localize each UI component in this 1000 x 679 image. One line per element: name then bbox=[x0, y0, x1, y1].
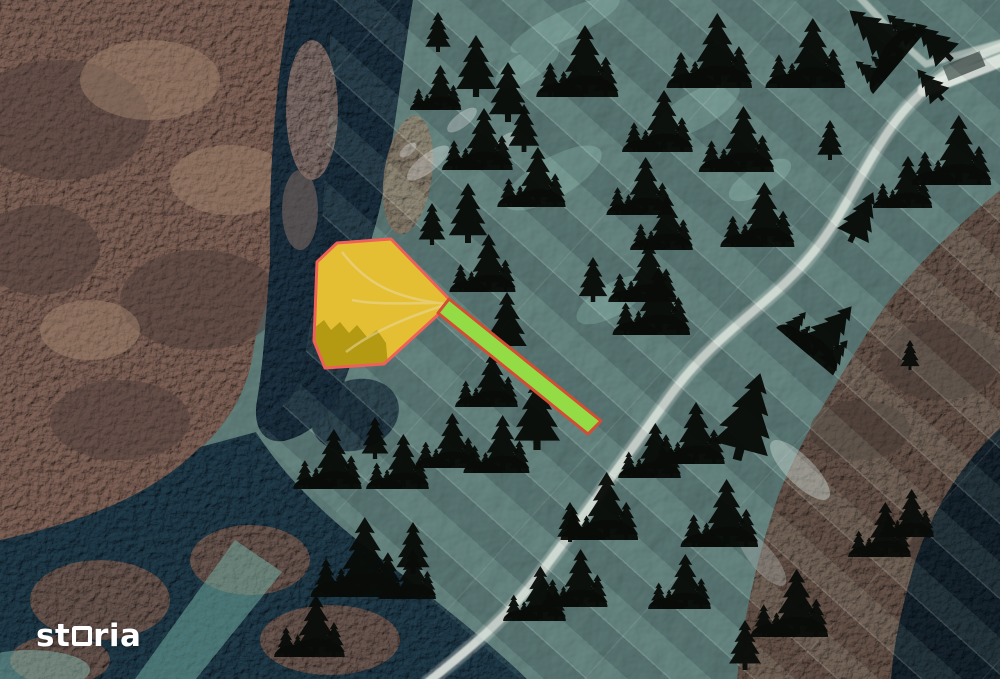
storia-watermark: stria bbox=[36, 618, 141, 654]
satellite-basemap bbox=[0, 0, 1000, 679]
watermark-square-o-icon bbox=[72, 626, 92, 646]
satellite-listing-image: stria bbox=[0, 0, 1000, 679]
watermark-text-pre: st bbox=[36, 618, 70, 654]
watermark-text-post: ria bbox=[93, 618, 141, 654]
